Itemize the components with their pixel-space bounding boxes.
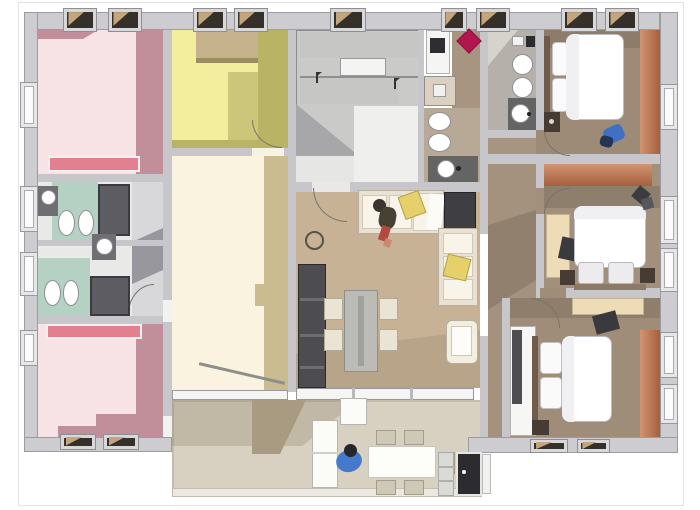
wall-hall-north (488, 154, 660, 164)
window-left-1 (20, 82, 38, 128)
terrace-chair-2 (404, 430, 424, 445)
stair-void (340, 58, 386, 76)
bath-a-shower (98, 184, 130, 236)
wc-tap (456, 166, 461, 171)
window-top-1 (63, 8, 97, 32)
cream-tan-band (264, 156, 288, 392)
window-bottom-east-1 (530, 439, 568, 453)
dining-chair-4 (379, 329, 398, 351)
wall-east-column (480, 30, 488, 234)
window-left-2 (20, 186, 38, 232)
sofa-side-cushion-3 (443, 279, 473, 300)
bath-b-bidet (63, 280, 79, 306)
dining-chair-1 (324, 298, 343, 320)
wall-bath-b-south (38, 316, 172, 324)
bath-ne-tap (527, 112, 531, 116)
window-top-2 (108, 8, 142, 32)
terrace-unit (340, 398, 367, 425)
bed-se-pillow-2 (540, 377, 562, 409)
terrace-counter-line (312, 452, 338, 454)
coffee-table (305, 231, 324, 250)
wc-bidet (428, 133, 451, 152)
terrace-chair-4 (404, 480, 424, 495)
tv-media-unit (444, 192, 476, 230)
bath-a-sink (41, 190, 56, 205)
window-bottom-east-2 (577, 439, 610, 453)
entrance-panel (456, 452, 482, 496)
stair-flight-upper (300, 32, 418, 58)
wall-bath-ne-south (488, 130, 536, 138)
wall-east-column-low (480, 336, 488, 437)
door-gap-bedroom-e (536, 188, 544, 214)
dining-chair-2 (324, 329, 343, 351)
exterior-steps (438, 452, 454, 496)
wall-bath-a-north (38, 174, 172, 182)
wall-bedroom-se-west (502, 298, 510, 437)
exterior-step-line-2 (438, 480, 454, 482)
dining-chair-3 (379, 298, 398, 320)
wardrobe-copper-ne (640, 30, 660, 154)
bath-b-shower (90, 276, 130, 316)
bed-ne-duvet-fold (566, 34, 579, 120)
bed-e-pillow-1 (578, 262, 604, 284)
window-left-4 (20, 330, 38, 366)
bed-ne-headboard (544, 36, 550, 120)
mullion-2 (410, 388, 413, 400)
window-top-6 (441, 8, 467, 32)
bed-nw (48, 156, 140, 172)
wall-outer-bottom-west (24, 437, 172, 452)
window-left-3 (20, 252, 38, 296)
bath-b-toilet (44, 280, 61, 306)
kitchen-unit-line-2 (300, 334, 324, 337)
window-bottom-west-2 (103, 434, 139, 450)
window-right-5 (660, 384, 678, 424)
sofa-side-cushion-1 (443, 233, 473, 254)
window-right-1 (660, 84, 678, 130)
shadow-bedroom-nw-east (136, 30, 163, 174)
terrace-counter (312, 420, 338, 488)
bath-b-mirror (96, 238, 113, 255)
entrance-handle (462, 470, 466, 474)
kitchen-tall-units (298, 264, 326, 388)
terrace-chair-3 (376, 480, 396, 495)
dining-table-center (358, 296, 364, 366)
cream-tan-notch (255, 284, 264, 306)
coat-hooks (430, 38, 445, 53)
threshold-cream-2 (163, 416, 172, 437)
stair-landing (354, 106, 420, 186)
bed-se-duvet-fold (562, 336, 574, 422)
threshold-cream-1 (163, 300, 172, 322)
elevator-car (433, 84, 446, 97)
nightstand-e-left (560, 270, 575, 285)
stair-flag-1 (316, 72, 323, 83)
wall-divider-west-wing (163, 30, 172, 437)
glass-south-living (296, 388, 474, 400)
bath-a-toilet (58, 210, 75, 236)
window-right-4 (660, 332, 678, 378)
bath-a-bidet (78, 210, 94, 236)
entrance-panel-white (482, 454, 491, 494)
wall-cream-east (288, 30, 296, 392)
bath-ne-toilet (512, 54, 533, 75)
armchair-cushion (451, 326, 472, 356)
kitchen-unit-line-1 (300, 298, 324, 301)
window-top-7 (476, 8, 510, 32)
bath-ne-faucet-plate (512, 36, 524, 46)
door-gap-study (252, 148, 284, 156)
shelving-se-dark (512, 330, 522, 404)
window-top-4 (234, 8, 268, 32)
wall-bedroom-e-west (536, 164, 544, 288)
window-right-2 (660, 196, 678, 244)
nightstand-e-right (640, 268, 655, 283)
terrace-chair-1 (376, 430, 396, 445)
bath-ne-faucet (526, 36, 535, 47)
nightstand-ne-knob (549, 119, 554, 124)
glass-south-cream (172, 390, 288, 400)
wc-sink (437, 160, 455, 178)
wardrobe-copper-se (640, 330, 660, 437)
bath-ne-bidet (512, 77, 533, 98)
window-top-5 (330, 8, 366, 32)
wardrobe-copper-e (544, 164, 652, 186)
wall-outer-bottom-east (468, 437, 678, 453)
floor-hall-south (488, 336, 502, 437)
bed-e-pillow-2 (608, 262, 634, 284)
window-top-3 (193, 8, 227, 32)
window-top-9 (605, 8, 639, 32)
exterior-step-line-1 (438, 466, 454, 468)
wall-stair-east (418, 30, 424, 194)
kitchen-unit-line-3 (300, 366, 324, 369)
door-gap-bedroom-se (540, 288, 566, 298)
window-right-3 (660, 248, 678, 292)
nightstand-se (532, 420, 549, 435)
terrace-table (368, 446, 436, 478)
door-gap-bedroom-ne (536, 130, 544, 154)
floorplan-stage (0, 0, 700, 510)
bed-se-pillow-1 (540, 342, 562, 374)
bed-se-headboard (532, 336, 538, 420)
bed-e-duvet-fold (574, 206, 646, 219)
terrace-step-edge (172, 488, 482, 497)
bed-sw (46, 324, 142, 339)
wall-outer-left (24, 12, 38, 452)
window-bottom-west-1 (60, 434, 96, 450)
person-terrace-head (344, 444, 357, 457)
stair-flight-lower (300, 78, 398, 104)
bed-e-headboard (574, 284, 646, 290)
stair-flag-2 (394, 78, 401, 89)
window-top-8 (561, 8, 597, 32)
wc-toilet (428, 112, 451, 131)
